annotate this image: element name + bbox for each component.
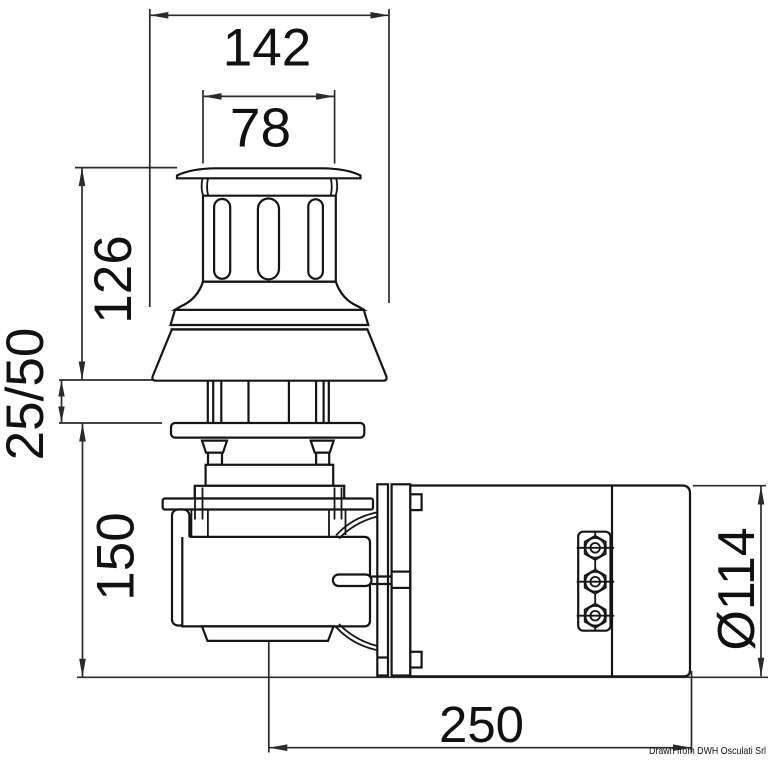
svg-text:Drawn from DWH Osculati Srl: Drawn from DWH Osculati Srl: [649, 745, 766, 757]
svg-text:Ø114: Ø114: [708, 527, 766, 650]
svg-text:250: 250: [439, 696, 524, 753]
svg-text:25/50: 25/50: [0, 328, 55, 461]
svg-text:142: 142: [223, 19, 311, 78]
svg-text:126: 126: [84, 235, 143, 323]
svg-text:78: 78: [230, 97, 291, 159]
svg-text:150: 150: [87, 512, 146, 600]
